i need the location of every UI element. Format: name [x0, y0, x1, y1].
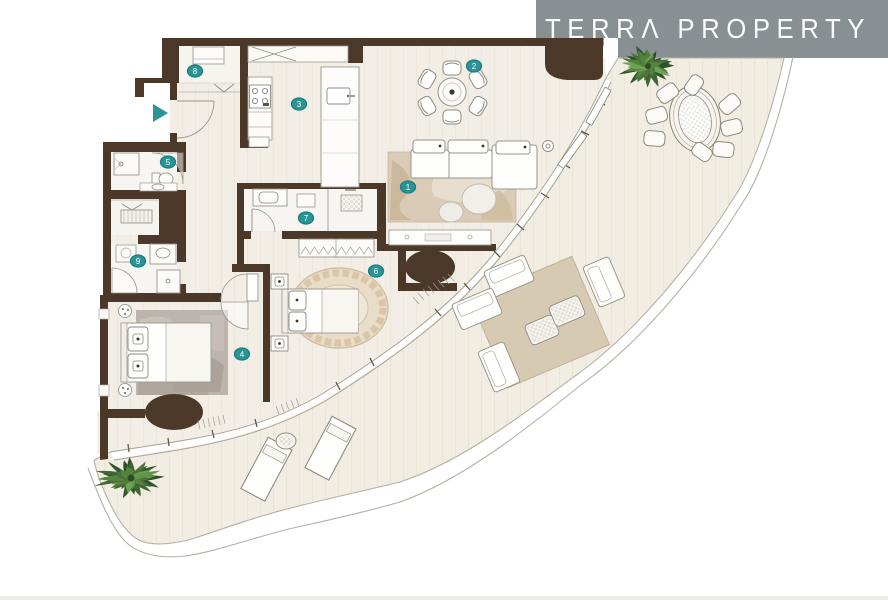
svg-text:2: 2: [472, 62, 477, 71]
svg-text:9: 9: [136, 257, 141, 266]
svg-text:7: 7: [304, 214, 309, 223]
svg-text:6: 6: [374, 267, 379, 276]
svg-text:3: 3: [297, 100, 302, 109]
svg-text:1: 1: [406, 183, 411, 192]
svg-text:5: 5: [166, 158, 171, 167]
svg-text:8: 8: [193, 67, 198, 76]
svg-text:4: 4: [240, 350, 245, 359]
